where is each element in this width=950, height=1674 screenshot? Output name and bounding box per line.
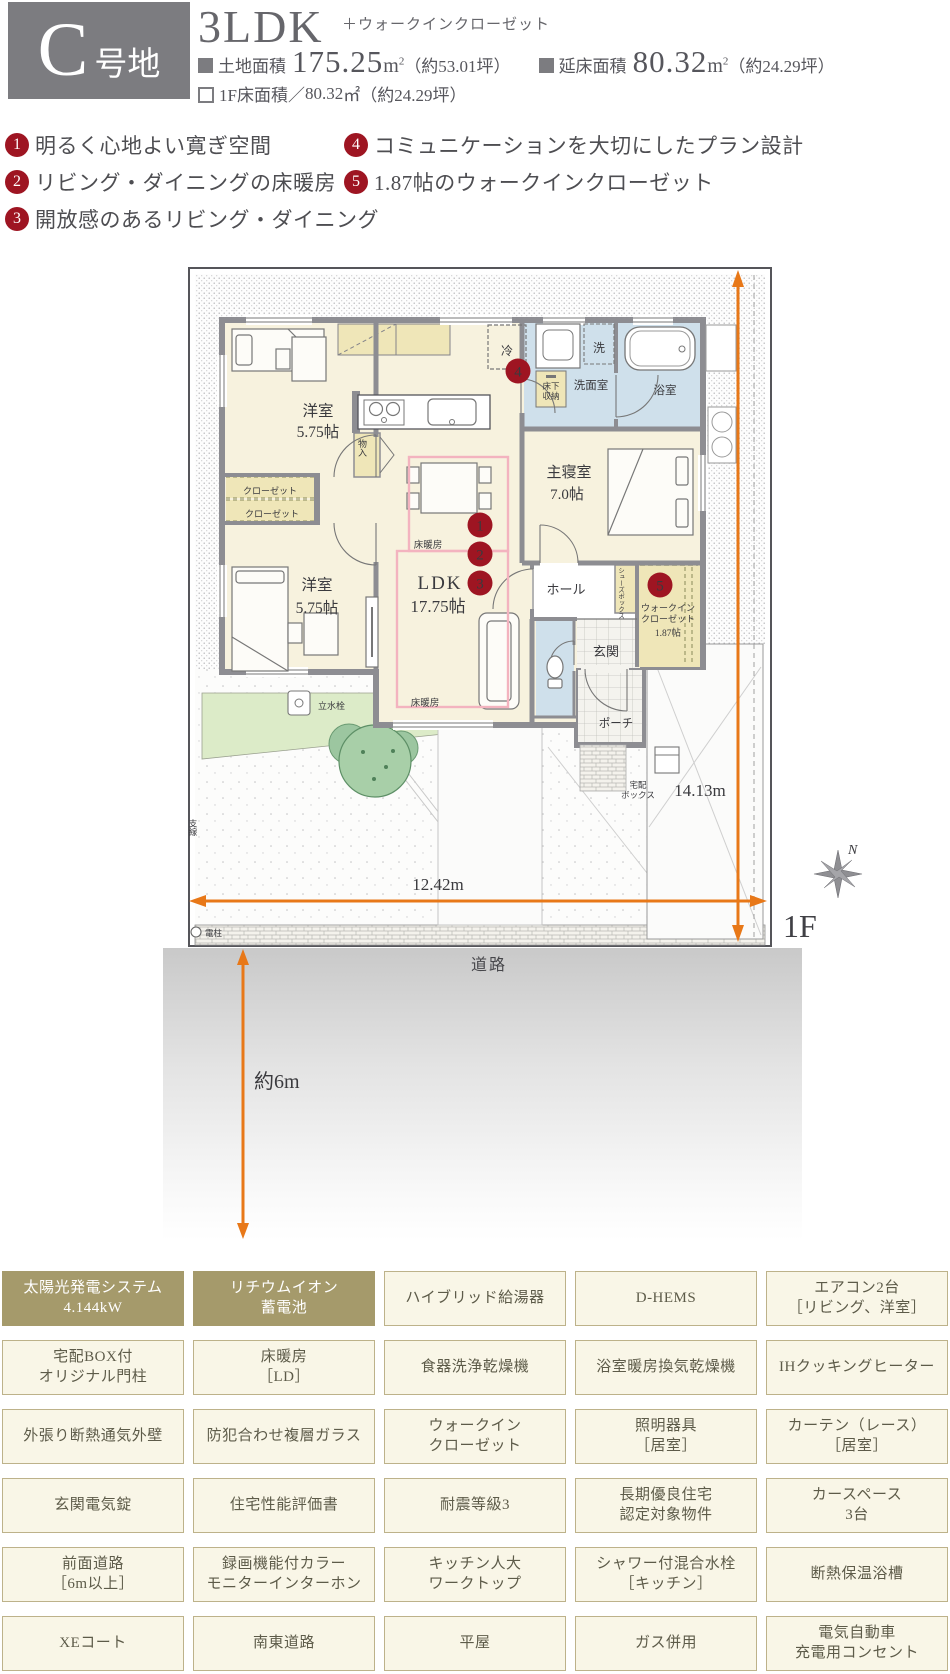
equipment-cell-line: キッチン人大 (428, 1555, 521, 1575)
equipment-cell: 太陽光発電システム4.144kW (2, 1271, 184, 1326)
equipment-grid: 太陽光発電システム4.144kWリチウムイオン蓄電池ハイブリッド給湯器D-HEM… (2, 1271, 948, 1671)
equipment-cell-line: モニターインターホン (206, 1575, 361, 1595)
utility-pole-icon (191, 927, 201, 937)
svg-text:浴室: 浴室 (654, 383, 677, 397)
svg-text:立水栓: 立水栓 (318, 700, 345, 711)
feature-text: 明るく心地よい寛ぎ空間 (35, 130, 272, 160)
svg-text:物入: 物入 (357, 438, 367, 457)
compass-north-label: N (847, 843, 858, 858)
equipment-cell-line: 外張り断熱通気外壁 (23, 1427, 163, 1447)
svg-text:1.87帖: 1.87帖 (655, 627, 682, 639)
svg-text:床下: 床下 (542, 381, 560, 391)
feature-number-badge: 1 (5, 133, 29, 157)
bathtub-icon (625, 327, 695, 370)
land-area: 土地面積 175.25 m2 （約53.01坪） (198, 44, 511, 80)
total-floor-area: 延床面積 80.32 m2 （約24.29坪） (539, 44, 835, 80)
equipment-cell-line: 南東道路 (253, 1634, 315, 1654)
floor-plan: 洋室 5.75帖 洋室 5.75帖 LDK 17.75帖 主寝室 7.0帖 洗面… (188, 267, 772, 947)
svg-text:クローゼット: クローゼット (243, 485, 297, 496)
equipment-cell: カースペース3台 (766, 1478, 948, 1533)
svg-text:電柱: 電柱 (205, 928, 223, 938)
equipment-cell-line: ハイブリッド給湯器 (405, 1289, 544, 1309)
equipment-cell: エアコン2台［リビング、洋室］ (766, 1271, 948, 1326)
open-square-icon (198, 87, 214, 103)
equipment-cell-line: 認定対象物件 (619, 1506, 712, 1526)
equipment-cell: 前面道路［6m以上］ (2, 1547, 184, 1602)
svg-text:17.75帖: 17.75帖 (410, 597, 465, 616)
equipment-cell-line: 玄関電気錠 (54, 1496, 132, 1516)
equipment-cell-line: 浴室暖房換気乾燥機 (596, 1358, 736, 1378)
feature-text: 開放感のあるリビング・ダイニング (35, 204, 379, 234)
room-label: 主寝室 (546, 463, 591, 481)
equipment-cell-line: 平屋 (459, 1634, 490, 1654)
equipment-cell-line: 長期優良住宅 (619, 1486, 712, 1506)
area-line: 土地面積 175.25 m2 （約53.01坪） 延床面積 80.32 m2 （… (198, 44, 859, 80)
setback-label: 約6m (254, 1070, 300, 1093)
svg-text:2: 2 (476, 548, 484, 564)
filled-square-icon (198, 58, 213, 73)
equipment-cell-line: XEコート (59, 1634, 127, 1654)
equipment-cell-line: 食器洗浄乾燥機 (421, 1358, 530, 1378)
equipment-cell-line: ［LD］ (258, 1368, 310, 1388)
equipment-cell: 防犯合わせ複層ガラス (193, 1409, 375, 1464)
feature-item-4: 4コミュニケーションを大切にしたプラン設計 (344, 130, 804, 160)
equipment-cell: キッチン人大ワークトップ (384, 1547, 566, 1602)
total-floor-area-unit: m2 (707, 55, 728, 78)
svg-text:洗面室: 洗面室 (574, 378, 609, 392)
equipment-cell: 南東道路 (193, 1616, 375, 1671)
kitchen-counter (358, 395, 490, 429)
feature-text: リビング・ダイニングの床暖房 (35, 167, 336, 197)
equipment-cell: 宅配BOX付オリジナル門柱 (2, 1340, 184, 1395)
svg-text:宅配: 宅配 (629, 780, 647, 790)
equipment-cell-line: 充電用コンセント (795, 1644, 919, 1664)
floor-indicator: 1F (783, 908, 817, 945)
svg-text:5.75帖: 5.75帖 (296, 599, 339, 617)
feature-number-badge: 2 (5, 170, 29, 194)
equipment-cell-line: 断熱保温浴槽 (810, 1565, 903, 1585)
equipment-cell: 長期優良住宅認定対象物件 (575, 1478, 757, 1533)
equipment-cell-line: ウォークイン (428, 1417, 521, 1437)
feature-item-2: 2リビング・ダイニングの床暖房 (5, 167, 336, 197)
land-area-label: 土地面積 (218, 52, 286, 77)
equipment-cell-line: ［居室］ (635, 1437, 697, 1457)
equipment-cell-line: 住宅性能評価書 (230, 1496, 339, 1516)
setback-dimension: 約6m (230, 948, 340, 1240)
room-label: 洋室 (302, 402, 333, 420)
equipment-cell-line: ワークトップ (428, 1575, 521, 1595)
feature-number-badge: 4 (344, 133, 368, 157)
equipment-cell: 照明器具［居室］ (575, 1409, 757, 1464)
equipment-cell: シャワー付混合水栓［キッチン］ (575, 1547, 757, 1602)
equipment-cell-line: ［リビング、洋室］ (788, 1299, 926, 1319)
equipment-cell-line: クローゼット (428, 1437, 521, 1457)
equipment-cell-line: ［居室］ (826, 1437, 888, 1457)
equipment-cell-line: 耐震等級3 (440, 1496, 510, 1516)
equipment-cell-line: リチウムイオン (230, 1279, 339, 1299)
svg-text:7.0帖: 7.0帖 (550, 486, 584, 503)
equipment-cell: 住宅性能評価書 (193, 1478, 375, 1533)
svg-text:ポーチ: ポーチ (599, 717, 634, 730)
total-floor-area-value: 80.32 (633, 44, 708, 80)
feature-item-3: 3開放感のあるリビング・ダイニング (5, 204, 379, 234)
equipment-cell: 電気自動車充電用コンセント (766, 1616, 948, 1671)
equipment-cell: 耐震等級3 (384, 1478, 566, 1533)
equipment-cell-line: 防犯合わせ複層ガラス (207, 1427, 362, 1447)
feature-item-5: 51.87帖のウォークインクローゼット (344, 167, 714, 197)
svg-text:床暖房: 床暖房 (414, 539, 443, 551)
plan-type-note: ＋ウォークインクローゼット (342, 13, 550, 34)
equipment-cell: 食器洗浄乾燥機 (384, 1340, 566, 1395)
equipment-cell-line: オリジナル門柱 (39, 1368, 148, 1388)
land-area-unit: m2 (383, 55, 404, 78)
room-label: 洋室 (301, 576, 332, 594)
svg-text:収納: 収納 (542, 391, 559, 401)
svg-text:ボックス: ボックス (621, 790, 655, 800)
compass: N (806, 838, 870, 906)
equipment-cell: 断熱保温浴槽 (766, 1547, 948, 1602)
svg-text:5.75帖: 5.75帖 (297, 423, 340, 441)
toilet-icon (547, 656, 563, 688)
svg-text:支線: 支線 (188, 818, 198, 836)
svg-text:ホール: ホール (546, 582, 585, 597)
equipment-cell: 浴室暖房換気乾燥機 (575, 1340, 757, 1395)
equipment-cell-line: ［キッチン］ (619, 1575, 712, 1595)
feature-number-badge: 5 (344, 170, 368, 194)
equipment-cell-line: 前面道路 (62, 1555, 124, 1575)
svg-text:ウォークイン: ウォークイン (641, 603, 695, 613)
dimension-height: 14.13m (674, 781, 725, 800)
feature-text: コミュニケーションを大切にしたプラン設計 (374, 130, 804, 160)
equipment-cell: D-HEMS (575, 1271, 757, 1326)
equipment-cell-line: 蓄電池 (261, 1299, 308, 1319)
washer-icon (536, 324, 580, 368)
first-floor-area-value: 80.32 (305, 84, 343, 104)
equipment-cell-line: 録画機能付カラー (222, 1555, 346, 1575)
svg-text:冷: 冷 (501, 344, 513, 358)
total-floor-area-label: 延床面積 (559, 52, 627, 77)
svg-text:クローゼット: クローゼット (245, 508, 299, 519)
equipment-cell-line: 照明器具 (635, 1417, 697, 1437)
svg-text:床暖房: 床暖房 (411, 697, 440, 709)
water-heater-unit (706, 325, 736, 371)
equipment-cell-line: 電気自動車 (818, 1624, 896, 1644)
land-area-value: 175.25 (292, 44, 383, 80)
equipment-cell-line: ガス併用 (635, 1634, 697, 1654)
delivery-box-icon (655, 747, 679, 773)
equipment-cell: カーテン（レース）［居室］ (766, 1409, 948, 1464)
first-floor-area-label: 1F床面積 (219, 81, 288, 106)
equipment-cell: 床暖房［LD］ (193, 1340, 375, 1395)
equipment-cell: 録画機能付カラーモニターインターホン (193, 1547, 375, 1602)
first-floor-area-line: 1F床面積 ／ 80.32 ㎡ （約24.29坪） (198, 81, 466, 106)
svg-text:洗: 洗 (593, 341, 605, 355)
dimension-width: 12.42m (412, 875, 463, 894)
equipment-cell-line: カースペース (812, 1486, 902, 1506)
first-floor-area-tsubo: （約24.29坪） (360, 81, 466, 106)
equipment-cell: 平屋 (384, 1616, 566, 1671)
equipment-cell-line: 3台 (845, 1506, 869, 1526)
equipment-cell-line: カーテン（レース） (788, 1417, 927, 1437)
lot-badge: C 号地 (8, 2, 190, 99)
equipment-cell: IHクッキングヒーター (766, 1340, 948, 1395)
filled-square-icon (539, 58, 554, 73)
equipment-cell-line: ［6m以上］ (52, 1575, 134, 1595)
land-area-tsubo: （約53.01坪） (404, 52, 510, 77)
approach-path (580, 745, 626, 791)
equipment-cell-line: 太陽光発電システム (23, 1279, 162, 1299)
equipment-cell-line: 4.144kW (64, 1299, 123, 1319)
total-floor-area-tsubo: （約24.29坪） (728, 52, 834, 77)
lot-letter: C (38, 2, 89, 99)
svg-text:3: 3 (476, 577, 484, 593)
equipment-cell: 玄関電気錠 (2, 1478, 184, 1533)
equipment-cell-line: D-HEMS (636, 1289, 697, 1309)
lot-suffix: 号地 (94, 37, 160, 85)
feature-item-1: 1明るく心地よい寛ぎ空間 (5, 130, 272, 160)
water-faucet-icon (288, 691, 310, 715)
kitchen-cupboard (338, 324, 450, 355)
equipment-cell: XEコート (2, 1616, 184, 1671)
equipment-cell-line: シャワー付混合水栓 (596, 1555, 736, 1575)
equipment-cell: リチウムイオン蓄電池 (193, 1271, 375, 1326)
equipment-cell: ガス併用 (575, 1616, 757, 1671)
svg-text:1: 1 (476, 519, 484, 535)
svg-text:クローゼット: クローゼット (641, 613, 695, 624)
equipment-cell: 外張り断熱通気外壁 (2, 1409, 184, 1464)
equipment-cell-line: IHクッキングヒーター (779, 1358, 935, 1378)
road-label: 道路 (471, 951, 507, 975)
equipment-cell-line: 床暖房 (261, 1348, 308, 1368)
outdoor-unit (708, 407, 736, 463)
svg-text:玄関: 玄関 (593, 644, 619, 659)
feature-number-badge: 3 (5, 207, 29, 231)
svg-text:4: 4 (514, 365, 522, 381)
flyer-page: C 号地 3LDK ＋ウォークインクローゼット 土地面積 175.25 m2 （… (0, 0, 950, 1674)
svg-text:5: 5 (656, 579, 664, 595)
feature-text: 1.87帖のウォークインクローゼット (374, 167, 714, 197)
equipment-cell: ハイブリッド給湯器 (384, 1271, 566, 1326)
equipment-cell-line: 宅配BOX付 (53, 1348, 133, 1368)
equipment-cell-line: エアコン2台 (814, 1279, 900, 1299)
room-label: LDK (417, 573, 462, 594)
equipment-cell: ウォークインクローゼット (384, 1409, 566, 1464)
